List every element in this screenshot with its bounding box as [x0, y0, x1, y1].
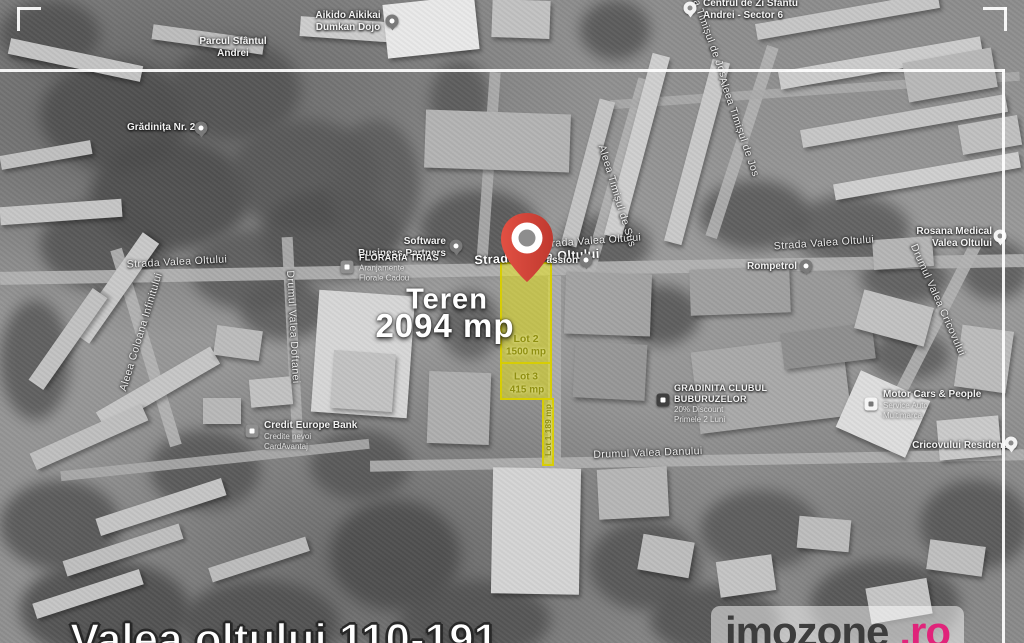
watermark-logo: imozone.ro [711, 606, 964, 643]
office-pin-icon [450, 240, 463, 253]
building [491, 467, 581, 595]
building [797, 516, 852, 552]
lot1-text: Lot 1 189 mp [543, 404, 553, 456]
building [597, 466, 670, 520]
bank-square-icon [246, 425, 259, 438]
school-pin-icon [195, 122, 208, 135]
building [564, 272, 652, 337]
poi-buburuzelor: GRADINITA CLUBUL BUBURUZELOR 20% Discoun… [674, 383, 767, 425]
restaurant-pin-icon [580, 254, 593, 267]
listing-address: Valea oltului 110-191 [70, 615, 498, 643]
frame-corner [17, 7, 41, 10]
building [382, 0, 479, 59]
frame-corner [1004, 7, 1007, 31]
building [330, 350, 396, 412]
vegetation-patch [330, 120, 420, 250]
florist-square-icon [341, 261, 354, 274]
building [203, 398, 241, 424]
property-listing-map: Lot 2 1500 mp Lot 3 415 mp Lot 1 189 mp … [0, 0, 1024, 643]
lot3-area: 415 mp [510, 385, 544, 396]
gas-station-pin-icon [800, 260, 813, 273]
building [424, 109, 571, 172]
poi-rompetrol: Rompetrol [747, 261, 797, 273]
poi-parcul: Parcul Sfântul Andrei [199, 36, 266, 60]
building [573, 341, 648, 401]
building [427, 371, 491, 445]
poi-cricovului-residence: Cricovului Residence [912, 440, 1014, 452]
building [249, 376, 293, 408]
lot-divider [500, 362, 552, 364]
building [833, 152, 1021, 200]
vegetation-patch [580, 0, 650, 60]
lot3-name: Lot 3 [514, 372, 538, 383]
frame-corner [17, 7, 20, 31]
plot-area-value: 2094 mp [375, 307, 514, 345]
frame-line [1002, 69, 1005, 643]
building [716, 554, 776, 597]
poi-credit-europe-bank: Credit Europe Bank Credite nevoi CardAva… [264, 420, 357, 452]
martial-arts-pin-icon [386, 15, 399, 28]
building [0, 140, 93, 170]
poi-aikido: Aikido Aikikai Dumkan Dojo [315, 10, 380, 34]
building [208, 537, 310, 583]
building [936, 415, 1001, 460]
poi-centrul-de-zi: Centrul de Zi Sfantu Andrei - Sector 6 [703, 0, 798, 22]
lot2-name: Lot 2 [513, 333, 538, 345]
building [958, 115, 1022, 155]
building [689, 266, 791, 315]
location-pin-icon [499, 212, 555, 284]
poi-floraria-trias: FLORARIA TRIAS Aranjamente Florale Cadou [359, 253, 439, 284]
watermark-tld: .ro [899, 608, 950, 643]
car-service-square-icon [865, 398, 878, 411]
watermark-brand: imozone [725, 608, 888, 643]
community-center-pin-icon [684, 2, 697, 15]
poi-motor-cars: Motor Cars & People Service Auto Multima… [883, 389, 981, 421]
residence-pin-icon [1005, 437, 1018, 450]
building [213, 325, 263, 361]
frame-line [0, 69, 1005, 72]
poi-rosana-medical: Rosana Medical Valea Oltului [916, 226, 992, 250]
building [491, 0, 550, 39]
building [954, 325, 1014, 394]
lot2-area: 1500 mp [506, 347, 546, 358]
kindergarten-square-icon [657, 394, 670, 407]
